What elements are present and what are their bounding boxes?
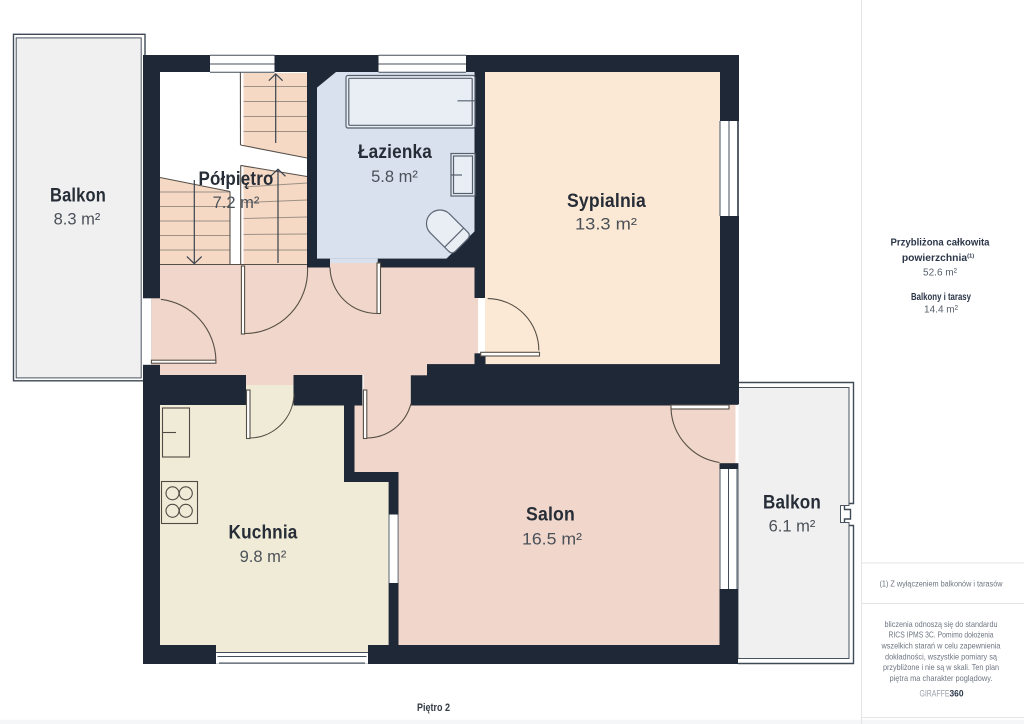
svg-text:Sypialnia: Sypialnia: [567, 191, 646, 212]
svg-text:13.3 m²: 13.3 m²: [575, 216, 638, 234]
svg-text:bliczenia odnoszą się do stand: bliczenia odnoszą się do standardu: [885, 619, 998, 629]
svg-text:Salon: Salon: [526, 505, 575, 526]
svg-text:Balkony i tarasy: Balkony i tarasy: [911, 292, 971, 303]
svg-text:piętra ma charakter poglądowy.: piętra ma charakter poglądowy.: [890, 673, 993, 683]
svg-text:dokładności, wszystkie pomiary: dokładności, wszystkie pomiary są: [885, 651, 997, 661]
svg-text:52.6 m²: 52.6 m²: [923, 267, 958, 278]
svg-text:16.5 m²: 16.5 m²: [522, 531, 583, 549]
svg-text:7.2 m²: 7.2 m²: [213, 194, 260, 212]
svg-text:powierzchnia(1): powierzchnia(1): [902, 253, 974, 264]
svg-text:przybliżone i nie są w skali.: przybliżone i nie są w skali. Ten plan: [883, 662, 999, 672]
svg-text:(1) Z wyłączeniem balkonów i t: (1) Z wyłączeniem balkonów i tarasów: [880, 579, 1003, 588]
svg-text:Kuchnia: Kuchnia: [229, 523, 298, 544]
svg-text:14.4 m²: 14.4 m²: [924, 304, 959, 315]
svg-text:Półpiętro: Półpiętro: [199, 169, 274, 190]
svg-text:RICS IPMS 3C. Pomimo dołożenia: RICS IPMS 3C. Pomimo dołożenia: [889, 630, 994, 640]
svg-text:Przybliżona całkowita: Przybliżona całkowita: [891, 238, 990, 249]
svg-text:Balkon: Balkon: [763, 493, 821, 514]
svg-text:GIRAFFE360: GIRAFFE360: [920, 689, 964, 699]
svg-text:Łazienka: Łazienka: [358, 142, 432, 163]
svg-text:Piętro 2: Piętro 2: [417, 702, 450, 714]
svg-text:8.3 m²: 8.3 m²: [54, 211, 101, 229]
svg-text:wszelkich starań w celu zapewn: wszelkich starań w celu zapewnienia: [881, 641, 1001, 651]
svg-text:Balkon: Balkon: [50, 186, 106, 207]
svg-text:6.1 m²: 6.1 m²: [769, 518, 816, 536]
svg-text:9.8 m²: 9.8 m²: [240, 548, 287, 566]
svg-text:5.8 m²: 5.8 m²: [371, 168, 418, 186]
